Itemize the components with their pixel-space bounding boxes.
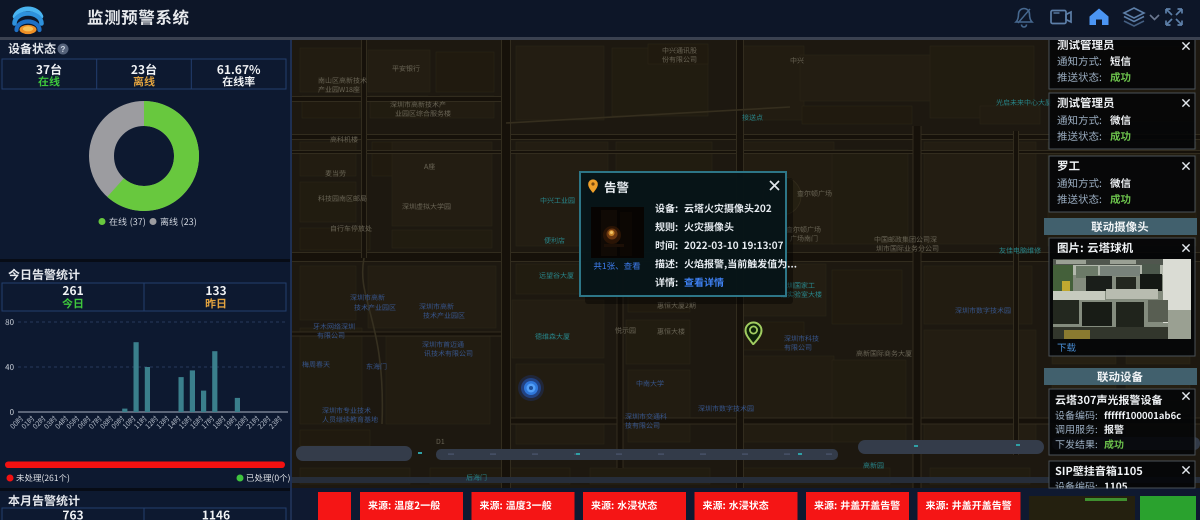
svg-text:?: ?: [61, 45, 66, 54]
